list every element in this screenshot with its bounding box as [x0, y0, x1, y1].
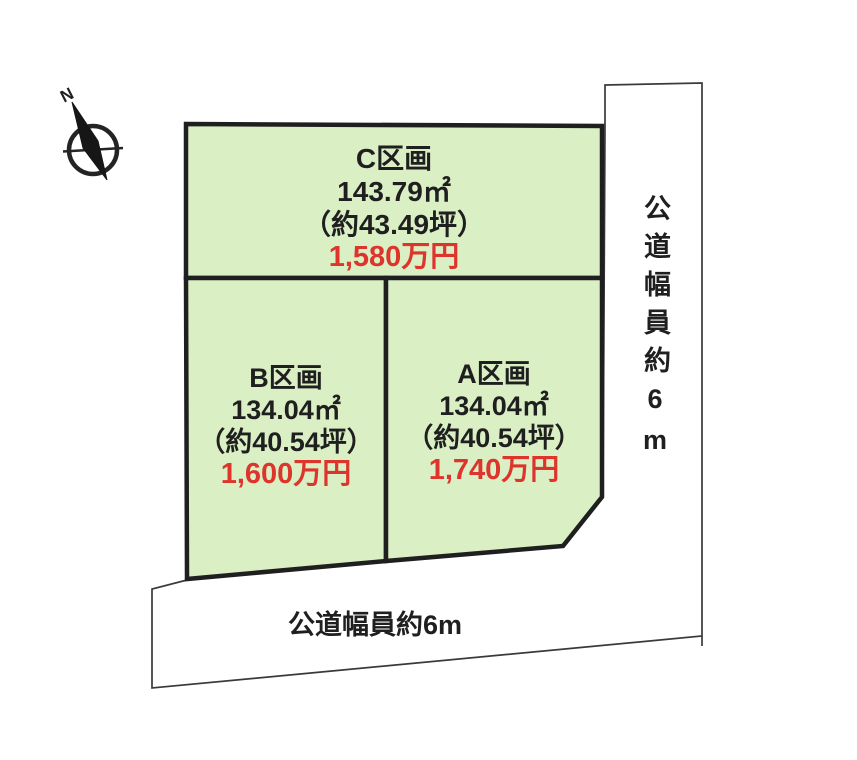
plot-region-c — [186, 124, 602, 278]
road-label-bottom: 公道幅員約6m — [225, 603, 525, 642]
plot-region-b — [186, 278, 386, 579]
diagram-canvas: N — [0, 0, 857, 760]
compass-north-label: N — [57, 84, 77, 107]
road-label-right: 公道幅員約6m — [636, 194, 675, 466]
land-plot-diagram: N C区画 143.79㎡ （約43.49坪） 1,580万円 B区画 134.… — [0, 0, 857, 760]
plot-region-a — [386, 278, 602, 561]
compass: N — [57, 84, 123, 180]
